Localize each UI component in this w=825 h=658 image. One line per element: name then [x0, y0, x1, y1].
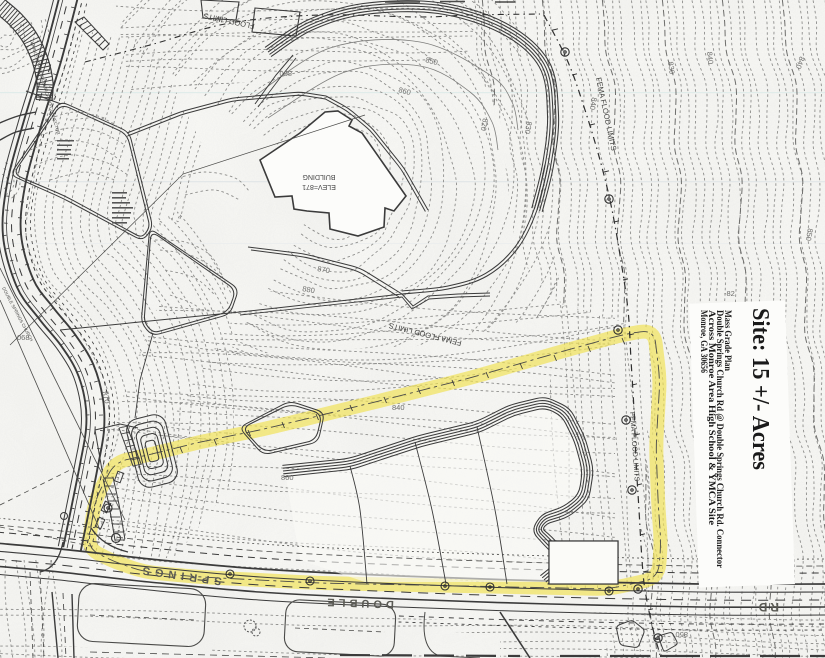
svg-text:840: 840	[392, 403, 405, 412]
svg-text:Site: 15 +/- Acres: Site: 15 +/- Acres	[747, 308, 773, 470]
svg-text:860: 860	[279, 69, 292, 78]
svg-text:850: 850	[675, 630, 688, 639]
svg-text:830: 830	[666, 61, 677, 75]
svg-text:ELEV=871: ELEV=871	[302, 183, 336, 190]
svg-text:860: 860	[281, 473, 294, 482]
svg-text:-82: -82	[724, 289, 735, 298]
svg-text:840: 840	[705, 51, 715, 64]
svg-text:RD: RD	[756, 600, 779, 614]
svg-text:068: 068	[17, 333, 30, 342]
svg-text:Monroe, GA 30656: Monroe, GA 30656	[699, 310, 709, 373]
svg-text:DOUBLE: DOUBLE	[323, 596, 394, 610]
svg-text:BUILDING: BUILDING	[302, 173, 335, 180]
